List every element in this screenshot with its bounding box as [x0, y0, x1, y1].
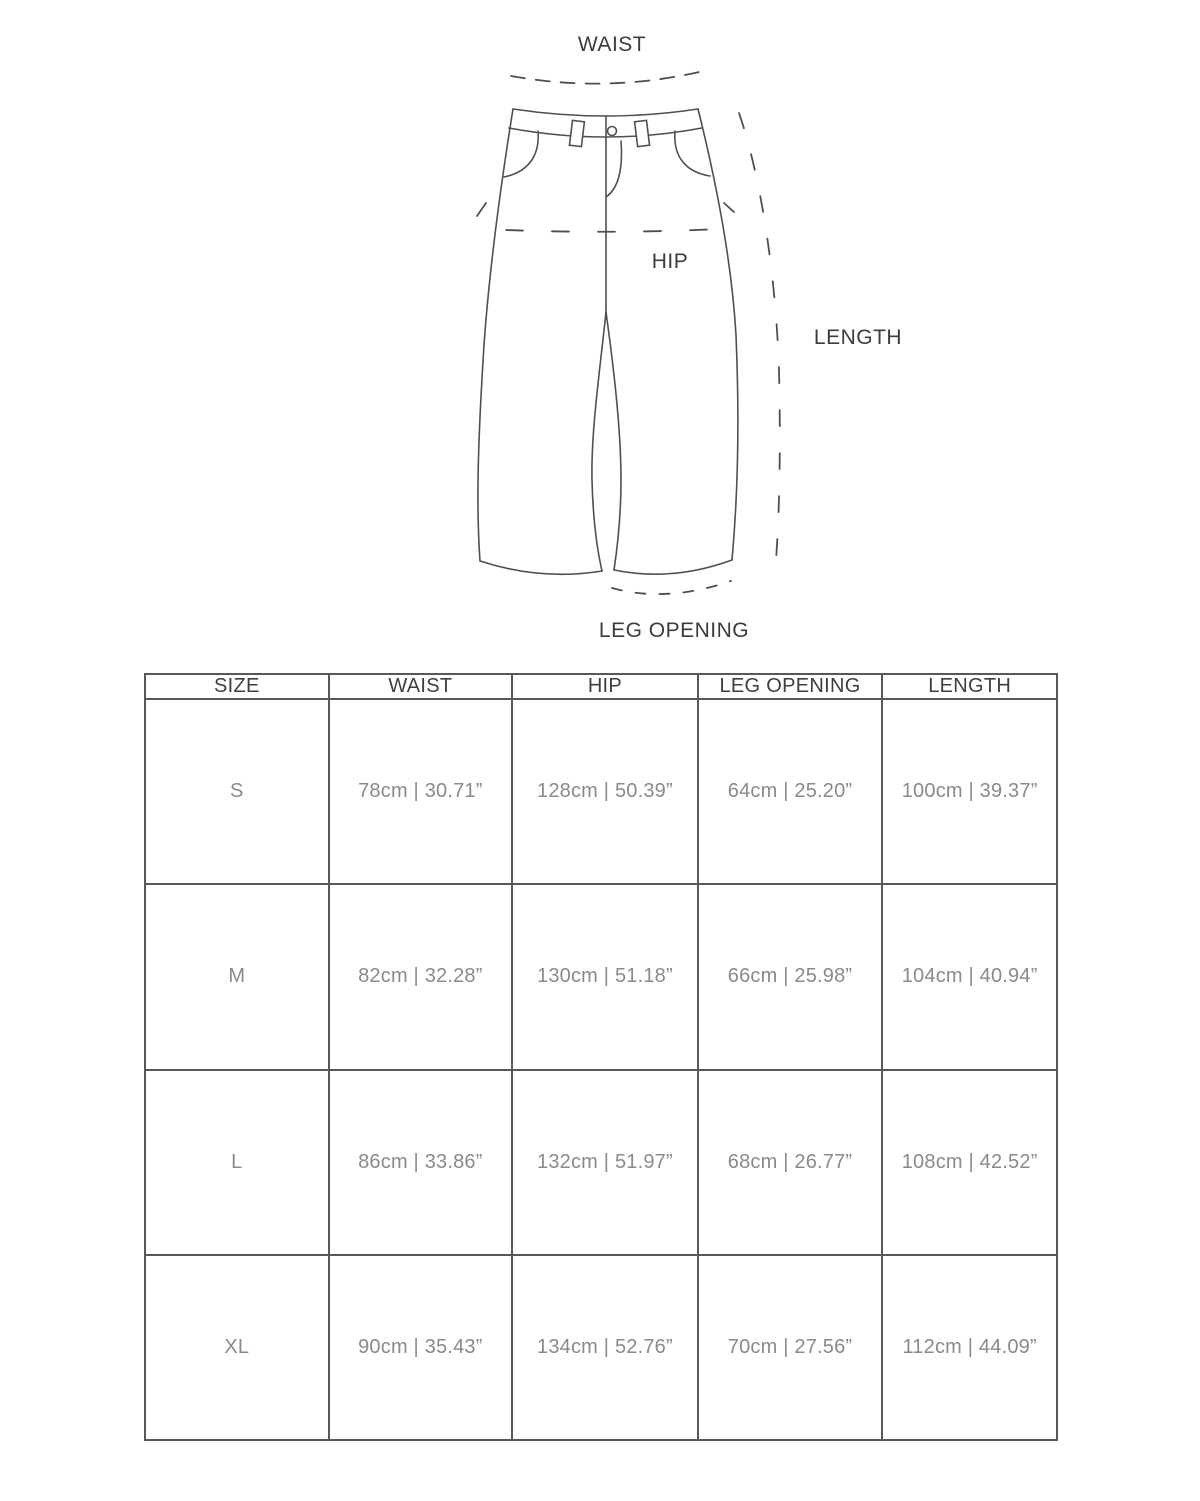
hip-cell: 132cm | 51.97”: [512, 1070, 698, 1255]
length-dashed-line: [739, 113, 780, 560]
leg-opening-cell: 70cm | 27.56”: [698, 1255, 883, 1440]
hip-cell: 128cm | 50.39”: [512, 699, 698, 884]
waist-cell: 90cm | 35.43”: [329, 1255, 513, 1440]
leg-opening-cell: 68cm | 26.77”: [698, 1070, 883, 1255]
table-row-xl: XL 90cm | 35.43” 134cm | 52.76” 70cm | 2…: [145, 1255, 1057, 1440]
size-guide-page: { "page": { "background_color": "#ffffff…: [0, 0, 1200, 1501]
waist-cell: 78cm | 30.71”: [329, 699, 513, 884]
hip-dash-right-tick: [724, 203, 734, 212]
length-cell: 112cm | 44.09”: [882, 1255, 1057, 1440]
table-row-s: S 78cm | 30.71” 128cm | 50.39” 64cm | 25…: [145, 699, 1057, 884]
waist-cell: 82cm | 32.28”: [329, 884, 513, 1069]
hip-label: HIP: [652, 250, 689, 273]
left-belt-loop: [569, 120, 584, 146]
leg-opening-cell: 64cm | 25.20”: [698, 699, 883, 884]
waist-dashed-line: [511, 72, 699, 84]
header-size: SIZE: [145, 674, 329, 699]
waist-label: WAIST: [578, 33, 646, 56]
leg-opening-cell: 66cm | 25.98”: [698, 884, 883, 1069]
size-chart-table: SIZE WAIST HIP LEG OPENING LENGTH S 78cm…: [144, 673, 1058, 1441]
size-cell: L: [145, 1070, 329, 1255]
right-leg-hem: [614, 560, 732, 574]
header-length: LENGTH: [882, 674, 1057, 699]
header-hip: HIP: [512, 674, 698, 699]
left-inner-seam: [592, 312, 606, 571]
header-leg-opening: LEG OPENING: [698, 674, 883, 699]
left-leg-hem: [480, 561, 602, 574]
hip-cell: 134cm | 52.76”: [512, 1255, 698, 1440]
right-inner-seam: [606, 312, 621, 570]
table-row-m: M 82cm | 32.28” 130cm | 51.18” 66cm | 25…: [145, 884, 1057, 1069]
waistband-top-edge: [513, 109, 698, 116]
size-cell: XL: [145, 1255, 329, 1440]
hip-dashed-line: [506, 229, 720, 232]
waist-cell: 86cm | 33.86”: [329, 1070, 513, 1255]
header-waist: WAIST: [329, 674, 513, 699]
pants-measurement-diagram: WAIST HIP LENGTH LEG OPENING: [0, 0, 1200, 660]
length-cell: 108cm | 42.52”: [882, 1070, 1057, 1255]
table-row-l: L 86cm | 33.86” 132cm | 51.97” 68cm | 26…: [145, 1070, 1057, 1255]
hip-cell: 130cm | 51.18”: [512, 884, 698, 1069]
leg-opening-label: LEG OPENING: [599, 619, 749, 642]
leg-opening-dashed-line: [612, 581, 731, 594]
hip-dash-left-tick: [477, 203, 486, 216]
right-outer-seam: [698, 109, 738, 560]
length-cell: 100cm | 39.37”: [882, 699, 1057, 884]
size-cell: S: [145, 699, 329, 884]
length-cell: 104cm | 40.94”: [882, 884, 1057, 1069]
length-label: LENGTH: [814, 326, 902, 349]
pants-technical-drawing: WAIST HIP LENGTH LEG OPENING: [0, 0, 1200, 660]
right-belt-loop: [635, 120, 650, 146]
fly-stitch-line: [606, 141, 621, 197]
waist-button: [608, 127, 617, 136]
header-row: SIZE WAIST HIP LEG OPENING LENGTH: [145, 674, 1057, 699]
size-cell: M: [145, 884, 329, 1069]
